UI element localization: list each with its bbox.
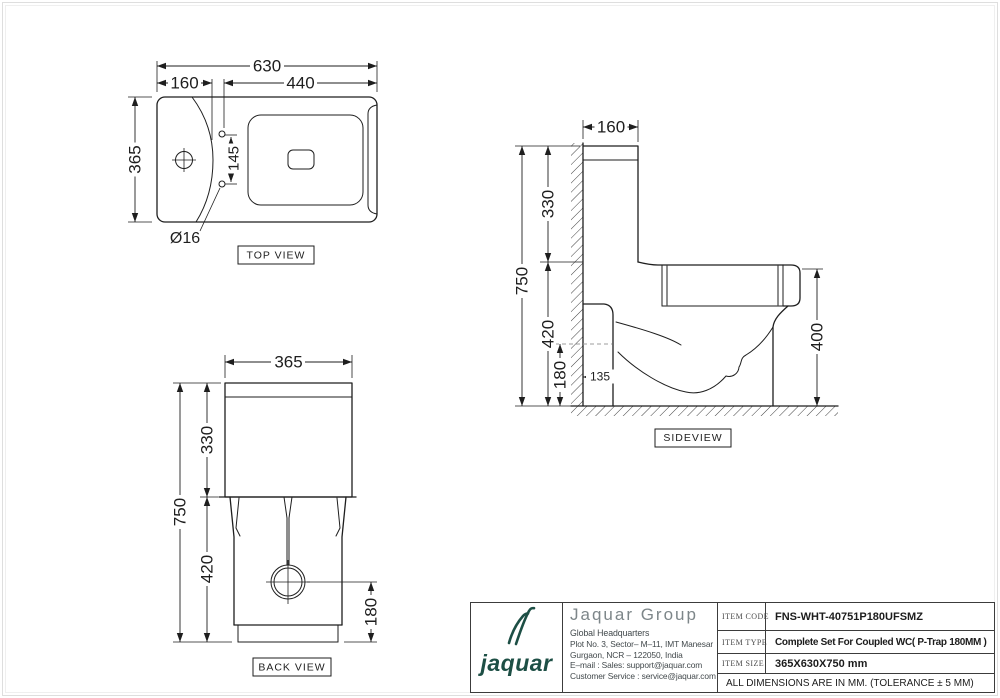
dim-side-trap-offset: 135 <box>590 370 610 384</box>
floor-hatch <box>571 406 838 416</box>
dim-back-base-height: 420 <box>198 555 217 583</box>
top-view-outline <box>157 97 377 231</box>
customer-service-line: Customer Service : service@jaquar.com <box>570 671 717 682</box>
email-line: E–mail : Sales: support@jaquar.com <box>570 660 717 671</box>
back-view-caption: BACK VIEW <box>253 658 331 676</box>
dim-side-trap-height: 180 <box>551 361 570 389</box>
side-view-caption: SIDEVIEW <box>655 429 731 447</box>
item-code-value: FNS-WHT-40751P180UFSMZ <box>766 611 994 623</box>
company-address-cell: Jaquar Group Global Headquarters Plot No… <box>563 603 718 692</box>
dim-side-tank-depth: 160 <box>597 118 625 137</box>
side-view-dimensions: 160 750 330 420 <box>513 118 827 407</box>
dim-top-overall-width: 630 <box>253 57 281 76</box>
address-line-2: Gurgaon, NCR – 122050, India <box>570 650 717 661</box>
item-type-row: ITEM TYPE Complete Set For Coupled WC( P… <box>718 631 994 654</box>
logo-cell: jaquar <box>471 603 563 692</box>
item-size-value: 365X630X750 mm <box>766 658 994 670</box>
item-code-label: ITEM CODE <box>718 603 766 630</box>
drawing-sheet: 630 160 440 365 <box>0 0 1000 698</box>
title-block: jaquar Jaquar Group Global Headquarters … <box>470 602 995 693</box>
dim-side-seat-height: 400 <box>808 323 827 351</box>
dim-back-tank-height: 330 <box>198 426 217 454</box>
dimensions-note-row: ALL DIMENSIONS ARE IN MM. (TOLERANCE ± 5… <box>718 674 994 692</box>
top-view-label: TOP VIEW <box>247 250 306 262</box>
dim-top-bolt-diameter: Ø16 <box>170 230 200 247</box>
wall-hatch <box>571 143 583 406</box>
side-view-label: SIDEVIEW <box>663 432 722 444</box>
dimensions-note: ALL DIMENSIONS ARE IN MM. (TOLERANCE ± 5… <box>718 678 974 689</box>
jaquar-wordmark: jaquar <box>471 652 562 675</box>
dim-top-tank-depth: 160 <box>170 74 198 93</box>
dim-back-outlet-height: 180 <box>362 598 381 626</box>
technical-drawing: 630 160 440 365 <box>0 0 1000 698</box>
top-view-dimensions: 630 160 440 365 <box>126 57 378 248</box>
item-code-row: ITEM CODE FNS-WHT-40751P180UFSMZ <box>718 603 994 631</box>
item-type-label: ITEM TYPE <box>718 631 766 653</box>
back-view-outline <box>219 383 356 642</box>
dim-back-overall-height: 750 <box>171 498 190 526</box>
side-view-drawing: 160 750 330 420 <box>513 118 839 448</box>
top-view-caption: TOP VIEW <box>238 246 314 264</box>
address-line-1: Plot No. 3, Sector– M–11, IMT Manesar <box>570 639 717 650</box>
item-info-table: ITEM CODE FNS-WHT-40751P180UFSMZ ITEM TY… <box>718 603 994 692</box>
top-view-drawing: 630 160 440 365 <box>126 57 378 265</box>
dim-side-tank-height: 330 <box>539 190 558 218</box>
back-view-label: BACK VIEW <box>258 662 325 674</box>
jaquar-swoosh-icon <box>471 605 562 652</box>
company-name: Jaquar Group <box>570 605 717 625</box>
item-size-label: ITEM SIZE <box>718 654 766 673</box>
item-size-row: ITEM SIZE 365X630X750 mm <box>718 654 994 674</box>
company-hq: Global Headquarters <box>570 627 717 639</box>
item-type-value: Complete Set For Coupled WC( P-Trap 180M… <box>766 637 994 648</box>
dim-top-bolt-spacing: 145 <box>226 146 243 171</box>
dim-top-overall-depth: 365 <box>126 145 145 173</box>
dim-side-overall-height: 750 <box>513 267 532 295</box>
dim-back-overall-width: 365 <box>274 353 302 372</box>
dim-side-rim-height: 420 <box>539 320 558 348</box>
dim-top-seat-length: 440 <box>286 74 314 93</box>
back-view-drawing: 365 750 330 420 <box>171 353 381 677</box>
